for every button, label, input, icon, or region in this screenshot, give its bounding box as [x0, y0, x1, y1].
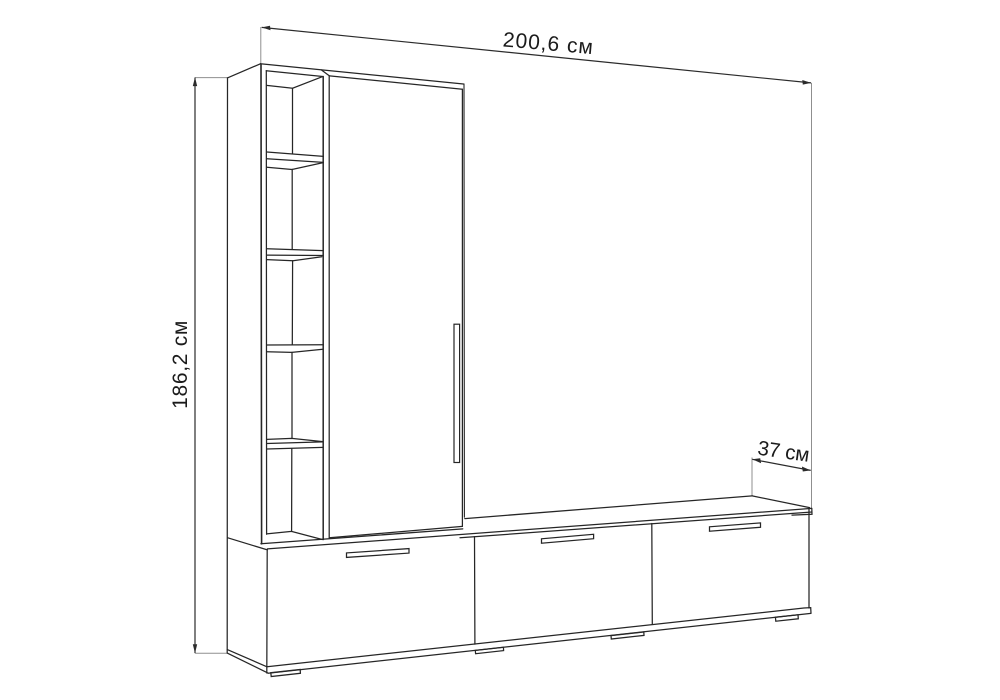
svg-text:186,2 см: 186,2 см	[169, 320, 192, 409]
